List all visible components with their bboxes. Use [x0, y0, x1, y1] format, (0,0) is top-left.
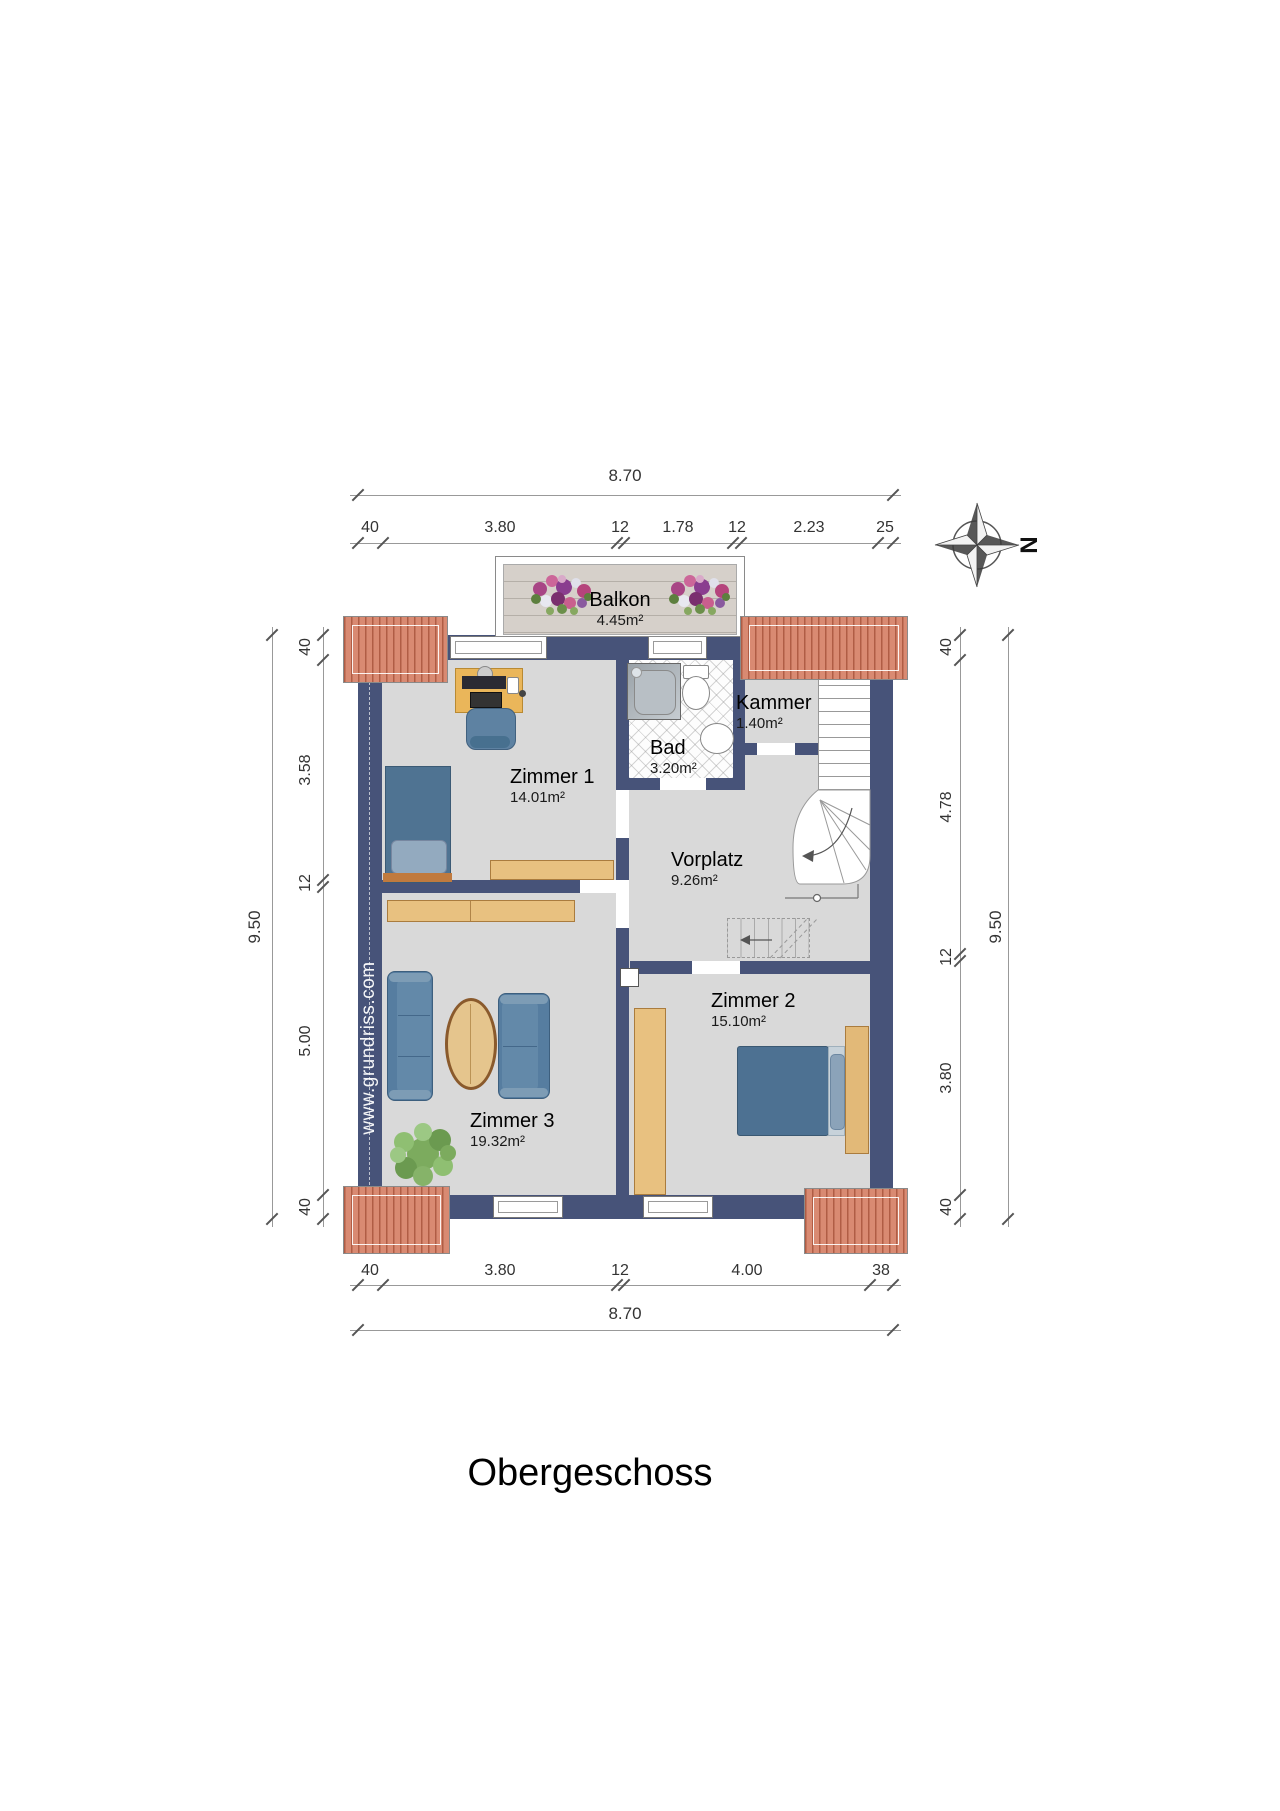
- dim-line: [272, 627, 273, 1227]
- dim-line: [350, 543, 901, 544]
- stair-winder: [720, 640, 910, 990]
- desk-chair-back: [470, 736, 510, 748]
- shower-tray: [634, 670, 676, 715]
- phone-icon: [507, 677, 519, 694]
- chimney: [620, 968, 639, 987]
- room-name: Zimmer 3: [470, 1109, 554, 1133]
- roof-overhang-bottom-left: [343, 1186, 450, 1254]
- roof-overhang-bottom-right: [804, 1188, 908, 1254]
- page-title: Obergeschoss: [390, 1452, 790, 1495]
- dim-bottom-segment-2: 12: [596, 1262, 644, 1280]
- room-area: 14.01m²: [510, 789, 594, 807]
- dim-right-segment-3: 3.80: [938, 1048, 956, 1108]
- room-name: Zimmer 2: [711, 989, 795, 1013]
- dim-top-segment-4: 12: [713, 519, 761, 537]
- sofa-armrest: [500, 1088, 548, 1097]
- sofa-cushion-divider: [503, 1046, 537, 1047]
- wall-interior-vertical: [616, 838, 629, 880]
- watermark: www.grundriss.com: [358, 893, 382, 1203]
- room-name: Bad: [650, 736, 697, 760]
- room-name: Zimmer 1: [510, 765, 594, 789]
- dim-bottom-overall: 8.70: [595, 1304, 655, 1324]
- dim-right-segment-4: 40: [938, 1177, 956, 1237]
- dim-top-overall: 8.70: [595, 466, 655, 486]
- dim-top-segment-3: 1.78: [650, 519, 706, 537]
- door-zimmer3: [616, 880, 629, 928]
- dim-bottom-segment-4: 38: [857, 1262, 905, 1280]
- dim-line: [1008, 627, 1009, 1227]
- wardrobe-icon: [634, 1008, 666, 1195]
- dim-top-segment-2: 12: [596, 519, 644, 537]
- room-area: 15.10m²: [711, 1013, 795, 1031]
- room-label-zimmer3: Zimmer 3 19.32m²: [470, 1109, 554, 1151]
- sofa-seat: [397, 979, 431, 1093]
- dim-bottom-segment-0: 40: [346, 1262, 394, 1280]
- dim-line: [350, 495, 901, 496]
- room-label-balkon: Balkon 4.45m²: [560, 588, 680, 630]
- dim-line: [350, 1285, 901, 1286]
- sideboard-icon: [387, 900, 575, 922]
- keyboard-icon: [470, 692, 502, 708]
- sofa-armrest: [389, 1090, 431, 1099]
- laptop-icon: [462, 676, 506, 689]
- dim-left-segment-4: 40: [297, 1177, 315, 1237]
- dim-bottom-segment-3: 4.00: [719, 1262, 775, 1280]
- sideboard-divider: [470, 901, 471, 921]
- dim-left-segment-2: 12: [297, 853, 315, 913]
- bad-window: [648, 636, 707, 659]
- zimmer3-window: [493, 1196, 563, 1218]
- sofa-armrest: [500, 995, 548, 1004]
- dim-top-segment-0: 40: [346, 519, 394, 537]
- dim-right-segment-2: 12: [938, 927, 956, 987]
- room-label-zimmer1: Zimmer 1 14.01m²: [510, 765, 594, 807]
- dim-left-segment-3: 5.00: [297, 1011, 315, 1071]
- door-zimmer1: [616, 790, 629, 838]
- compass-rose-icon: N: [920, 488, 1050, 603]
- coffee-table-icon: [445, 998, 497, 1090]
- roof-overhang-top-right: [740, 616, 908, 680]
- dim-left-overall: 9.50: [245, 897, 263, 957]
- dim-right-overall: 9.50: [986, 897, 1004, 957]
- toilet-icon: [682, 676, 710, 710]
- desk-item-icon: [519, 690, 526, 697]
- zimmer2-window: [643, 1196, 713, 1218]
- dim-left-segment-1: 3.58: [297, 740, 315, 800]
- room-area: 19.32m²: [470, 1133, 554, 1151]
- dim-top-segment-1: 3.80: [472, 519, 528, 537]
- bed-headboard: [845, 1026, 869, 1154]
- sideboard-icon: [490, 860, 614, 880]
- door-bad: [660, 778, 706, 790]
- dim-line: [323, 627, 324, 1227]
- dim-top-segment-5: 2.23: [781, 519, 837, 537]
- wall-vorplatz-zimmer2: [630, 961, 692, 974]
- room-label-zimmer2: Zimmer 2 15.10m²: [711, 989, 795, 1031]
- door-zimmer3: [580, 880, 616, 893]
- dim-line: [350, 1330, 901, 1331]
- coffee-table-seam: [470, 1004, 471, 1084]
- dim-left-segment-0: 40: [297, 617, 315, 677]
- roof-overhang-top-left: [343, 616, 448, 683]
- dim-line: [960, 627, 961, 1227]
- dim-right-segment-0: 40: [938, 617, 956, 677]
- sofa-cushion-divider: [398, 1015, 430, 1016]
- room-area: 4.45m²: [560, 612, 680, 630]
- dim-bottom-segment-1: 3.80: [472, 1262, 528, 1280]
- sofa-armrest: [389, 973, 431, 982]
- room-area: 3.20m²: [650, 760, 697, 778]
- bed-pillow-icon: [391, 840, 447, 874]
- floor-plan: Balkon 4.45m² Zimmer 1 14.01m² Bad 3.20m…: [0, 0, 1280, 1811]
- dim-top-segment-6: 25: [861, 519, 909, 537]
- balcony-door-window: [450, 636, 547, 659]
- compass-north-label: N: [1015, 536, 1042, 553]
- sofa-cushion-divider: [398, 1056, 430, 1057]
- bed-footboard: [383, 873, 452, 882]
- shower-drain-icon: [631, 667, 642, 678]
- room-label-bad: Bad 3.20m²: [650, 736, 697, 778]
- plant-icon: [388, 1120, 458, 1188]
- wall-bad-bottom: [616, 778, 660, 790]
- bed-pillow-icon: [830, 1054, 845, 1130]
- double-bed-icon: [737, 1046, 829, 1136]
- room-name: Balkon: [560, 588, 680, 612]
- dim-right-segment-1: 4.78: [938, 777, 956, 837]
